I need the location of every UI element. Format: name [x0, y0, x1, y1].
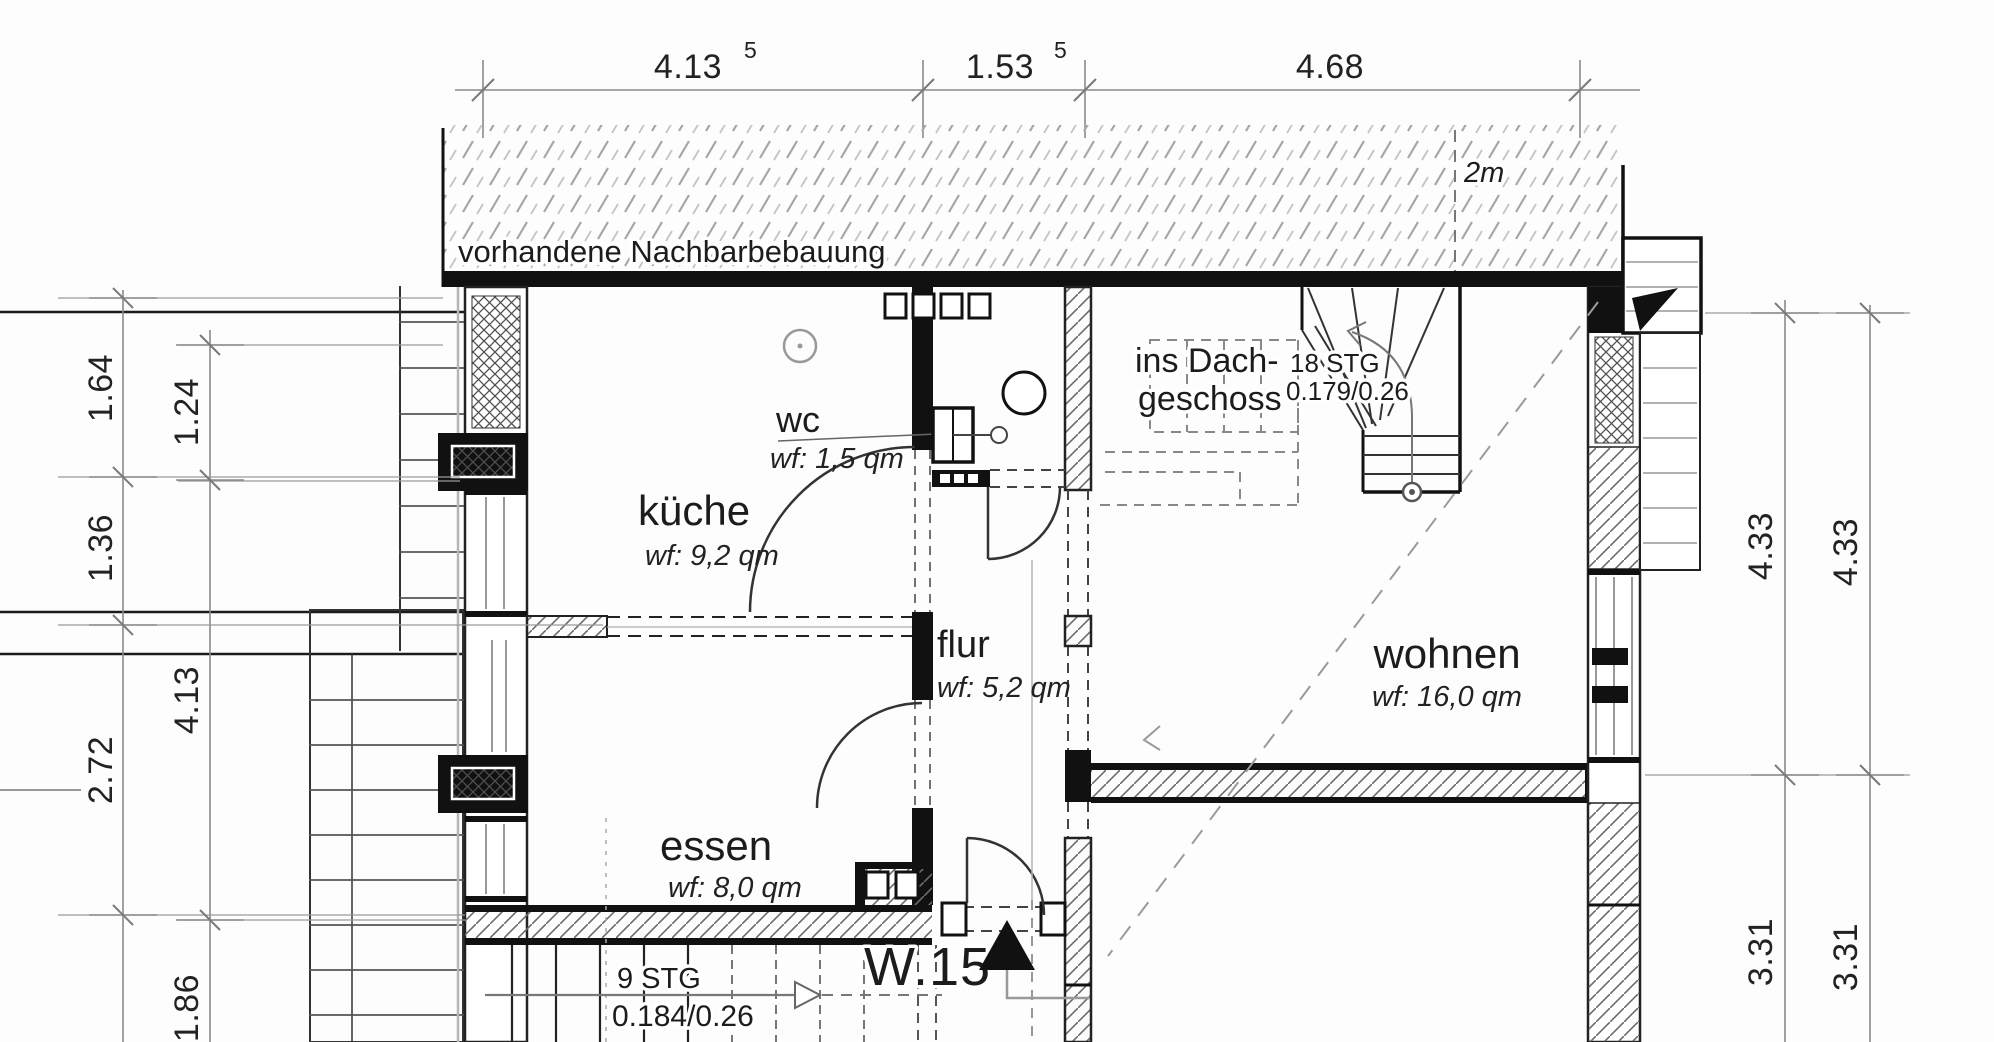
floorplan-svg: 4.13 5 1.53 5 4.68 vorhandene Nachbarbeb… [0, 0, 1994, 1042]
dim-left-outer-3: 1.86 [168, 974, 206, 1042]
distance-2m-label: 2m [1463, 157, 1504, 189]
room-flur-name: flur [937, 624, 990, 666]
left-neighbor-structure [0, 287, 463, 1042]
stair-to-attic: ins Dach- geschoss 18 STG 0.179/0.26 [1100, 287, 1460, 505]
dim-top-3: 4.68 [1296, 48, 1364, 86]
room-kueche-area: wf: 9,2 qm [645, 540, 779, 572]
dimension-chain-top: 4.13 5 1.53 5 4.68 [455, 37, 1640, 138]
party-wall [443, 271, 1623, 287]
kueche-essen-wall [527, 616, 607, 637]
room-wc-area: wf: 1,5 qm [770, 443, 904, 475]
attic-dest-line1: ins Dach- [1135, 342, 1279, 380]
dim-top-2-sup: 5 [1054, 37, 1067, 63]
neighbor-stair-lines [310, 700, 463, 1015]
room-wohnen-area: wf: 16,0 qm [1372, 681, 1522, 713]
dim-left-outer-2: 4.13 [168, 666, 206, 734]
entry-east-wall [1065, 838, 1091, 1042]
neighbor-note-label: vorhandene Nachbarbebauung [458, 234, 885, 269]
wc-toilet [1003, 372, 1045, 414]
wc-door [988, 487, 1060, 559]
wohnen-south-wall [1091, 763, 1640, 803]
room-flur-area: wf: 5,2 qm [937, 672, 1071, 704]
lower-steps-label: 9 STG [617, 963, 701, 995]
attic-dest-line2: geschoss [1138, 380, 1282, 418]
dim-top-2: 1.53 [966, 48, 1034, 86]
room-kueche-name: küche [638, 487, 750, 534]
room-essen-area: wf: 8,0 qm [668, 872, 802, 904]
dim-right-outer-2: 3.31 [1827, 923, 1865, 991]
dim-right-outer-1: 4.33 [1827, 518, 1865, 586]
dim-left-1: 1.64 [82, 354, 120, 422]
dim-left-outer-1: 1.24 [168, 378, 206, 446]
essen-door [817, 703, 922, 808]
dim-right-1: 4.33 [1742, 512, 1780, 580]
radiator [885, 294, 990, 318]
wc-east-wall [1065, 287, 1091, 490]
room-wc-name: wc [775, 399, 820, 440]
lower-stepdim-label: 0.184/0.26 [612, 1000, 754, 1033]
dim-left-2: 1.36 [82, 514, 120, 582]
attic-stepdim-label: 0.179/0.26 [1286, 376, 1409, 406]
room-essen-name: essen [660, 822, 772, 869]
attic-steps-label: 18 STG [1290, 348, 1380, 378]
dim-left-3: 2.72 [82, 736, 120, 804]
dim-top-1-sup: 5 [744, 37, 757, 63]
unit-label: W.15 [864, 937, 991, 997]
dim-right-2: 3.31 [1742, 918, 1780, 986]
floorplan-drawing: 4.13 5 1.53 5 4.68 vorhandene Nachbarbeb… [0, 0, 1994, 1042]
neighbor-building-band: vorhandene Nachbarbebauung 2m [443, 125, 1623, 332]
room-wohnen-name: wohnen [1372, 630, 1520, 677]
dim-top-1: 4.13 [654, 48, 722, 86]
